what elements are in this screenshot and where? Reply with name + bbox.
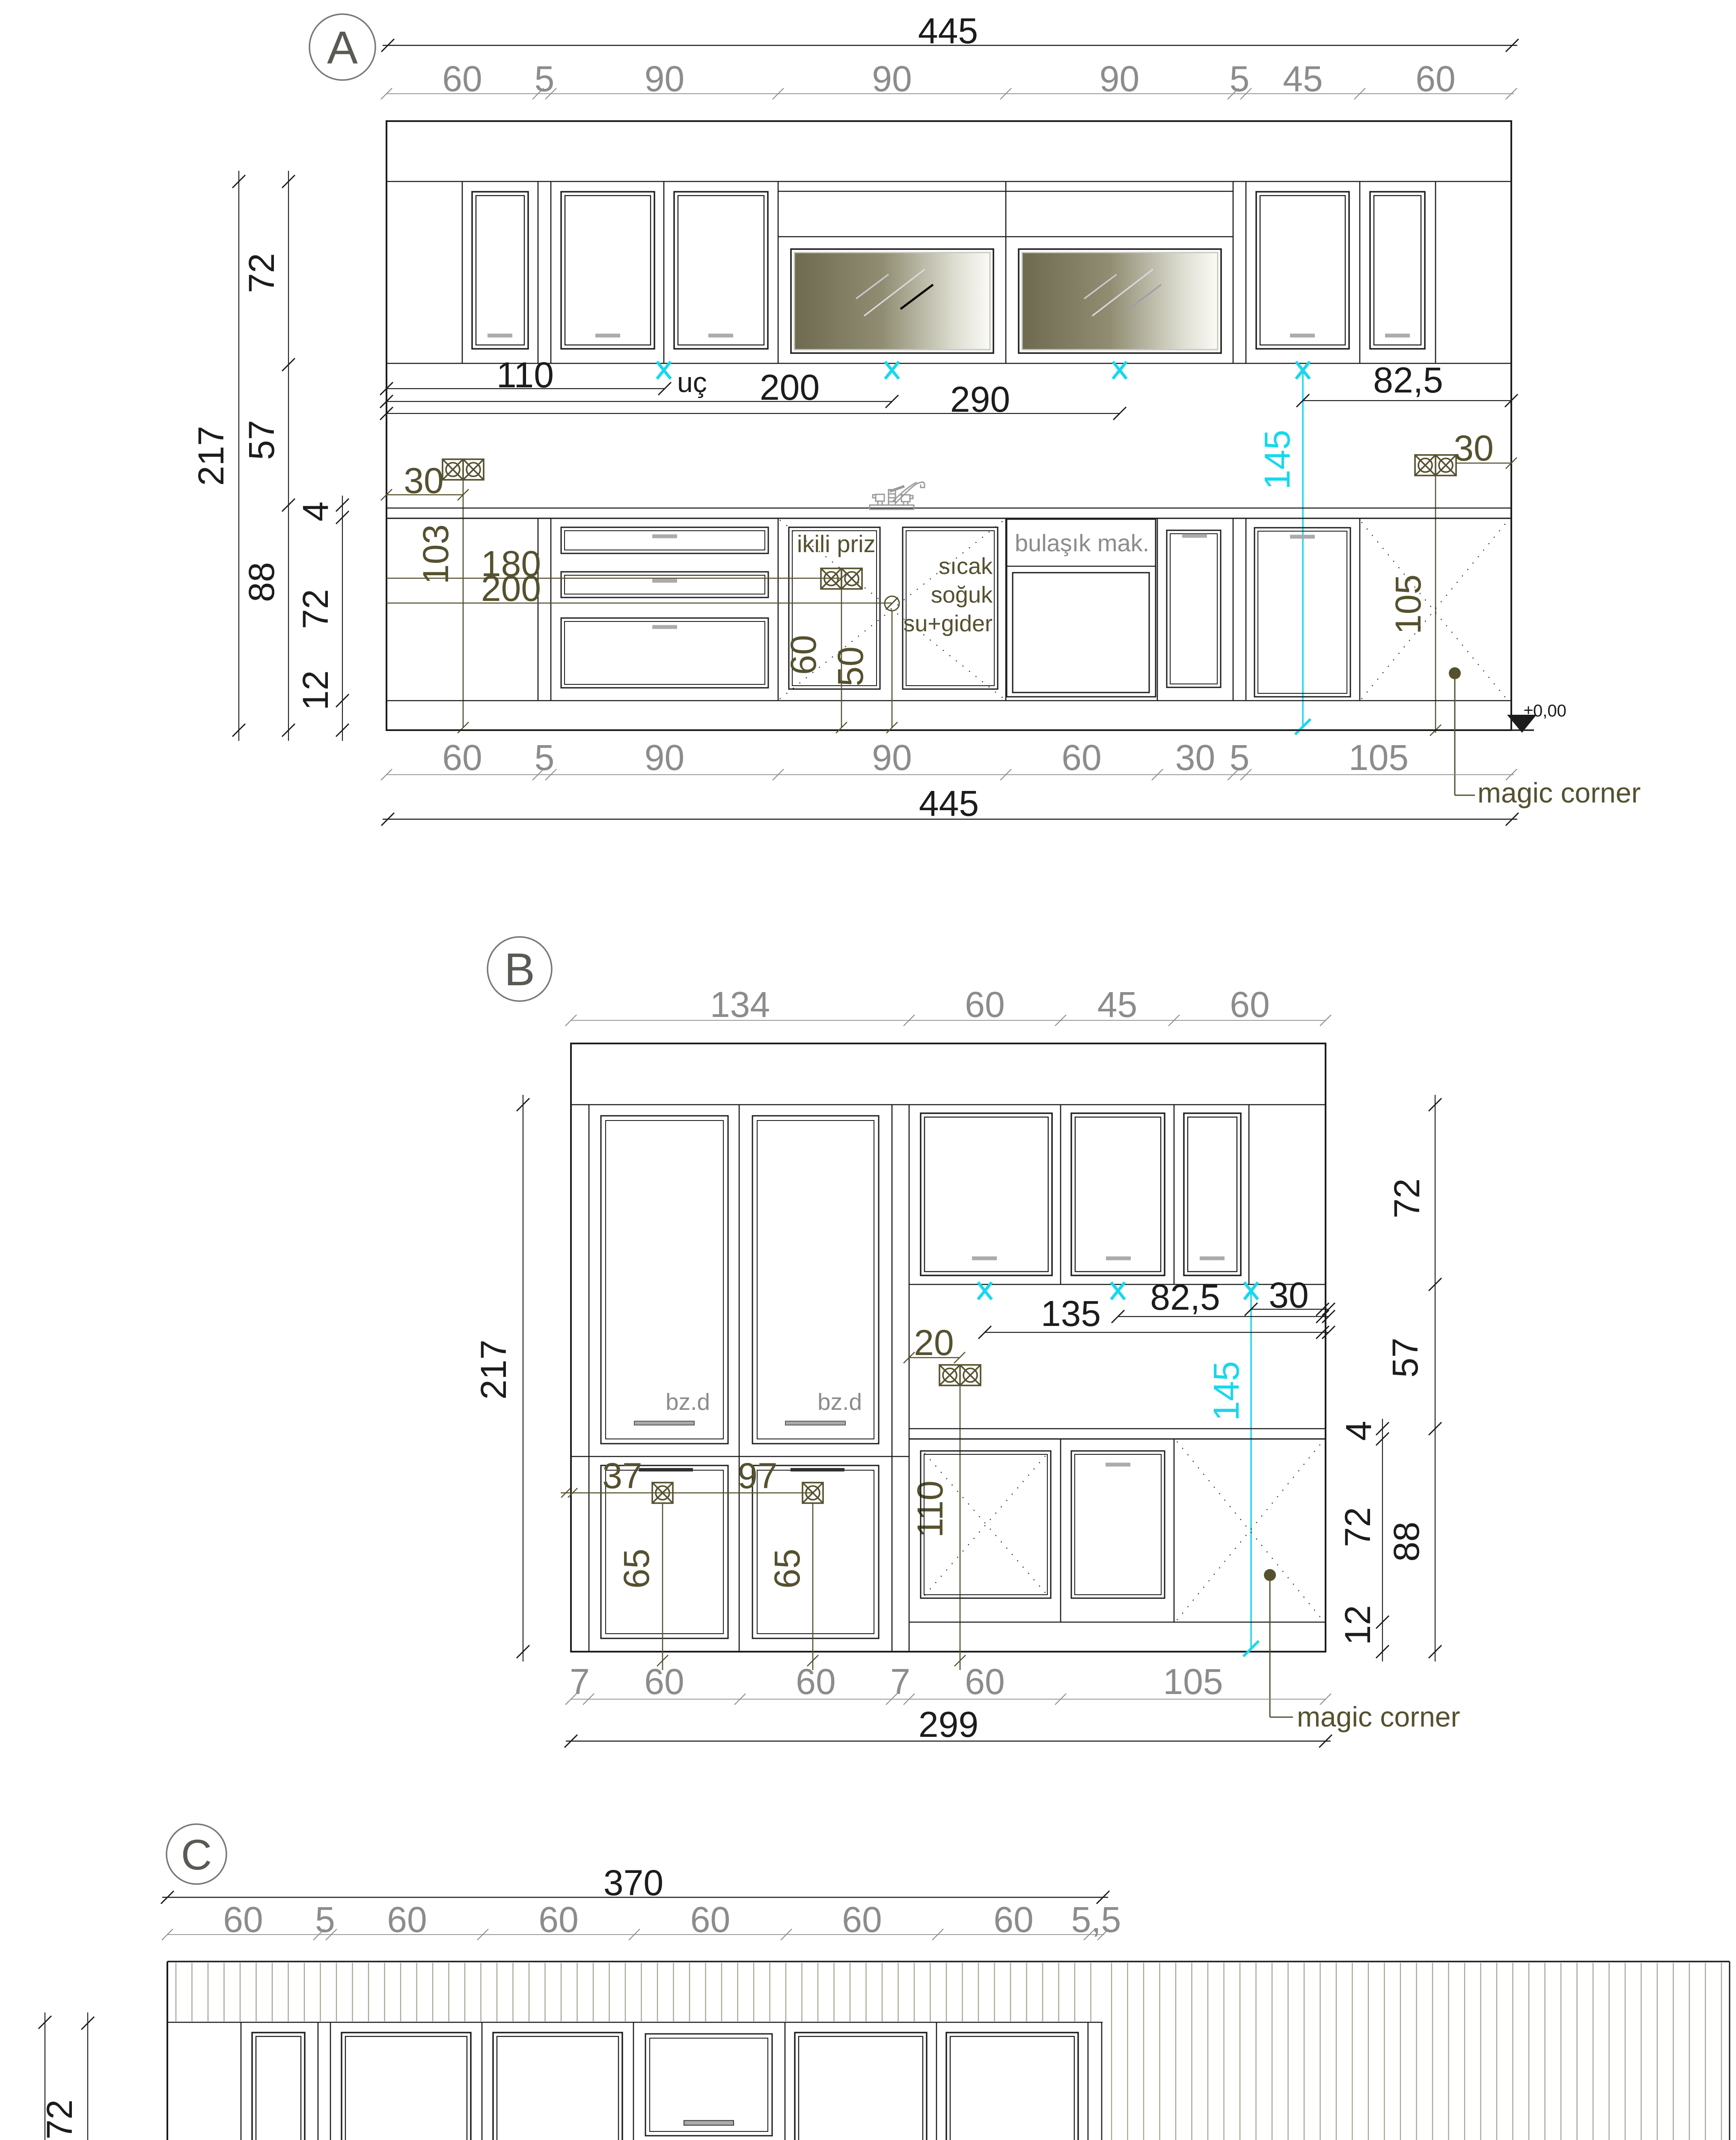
svg-text:299: 299 <box>919 1704 978 1745</box>
svg-text:65: 65 <box>616 1549 657 1588</box>
svg-text:82,5: 82,5 <box>1150 1277 1220 1317</box>
svg-text:bz.d: bz.d <box>817 1388 862 1415</box>
svg-text:magic corner: magic corner <box>1297 1701 1460 1733</box>
svg-text:50: 50 <box>830 646 871 686</box>
svg-text:90: 90 <box>645 59 684 99</box>
svg-text:72: 72 <box>1387 1178 1427 1218</box>
svg-text:45: 45 <box>1097 984 1137 1025</box>
svg-text:105: 105 <box>1163 1661 1223 1702</box>
svg-text:217: 217 <box>473 1340 514 1400</box>
svg-text:90: 90 <box>1100 59 1139 99</box>
svg-text:445: 445 <box>919 783 979 823</box>
svg-text:217: 217 <box>191 426 231 486</box>
svg-text:60: 60 <box>796 1661 835 1702</box>
svg-text:82,5: 82,5 <box>1373 360 1443 400</box>
svg-text:57: 57 <box>1385 1337 1425 1377</box>
svg-text:103: 103 <box>416 524 456 584</box>
svg-text:60: 60 <box>538 1899 578 1940</box>
svg-text:30: 30 <box>1454 428 1493 468</box>
svg-text:A: A <box>327 21 358 73</box>
svg-text:72: 72 <box>1338 1507 1378 1547</box>
svg-text:90: 90 <box>872 737 912 778</box>
svg-text:60: 60 <box>965 984 1005 1025</box>
svg-text:88: 88 <box>241 562 282 602</box>
svg-text:60: 60 <box>442 737 482 778</box>
svg-text:105: 105 <box>1388 574 1428 634</box>
svg-text:bulaşık mak.: bulaşık mak. <box>1015 529 1149 556</box>
svg-text:5: 5 <box>535 59 555 99</box>
svg-text:7: 7 <box>570 1661 590 1702</box>
svg-text:60: 60 <box>690 1899 730 1940</box>
svg-text:ikili priz: ikili priz <box>797 530 876 557</box>
svg-text:5: 5 <box>315 1899 335 1940</box>
svg-text:134: 134 <box>710 984 770 1025</box>
svg-text:C: C <box>181 1831 212 1879</box>
svg-text:60: 60 <box>644 1661 684 1702</box>
svg-text:65: 65 <box>767 1549 807 1588</box>
svg-text:5: 5 <box>1230 59 1250 99</box>
svg-text:60: 60 <box>783 635 823 675</box>
svg-text:105: 105 <box>1349 737 1409 778</box>
svg-text:60: 60 <box>993 1899 1033 1940</box>
svg-text:37: 37 <box>602 1456 642 1496</box>
svg-text:12: 12 <box>1338 1605 1378 1645</box>
svg-text:60: 60 <box>387 1899 427 1940</box>
svg-text:135: 135 <box>1041 1293 1101 1334</box>
svg-text:soğuk: soğuk <box>931 582 993 608</box>
svg-text:4: 4 <box>1338 1421 1379 1441</box>
svg-text:45: 45 <box>1283 59 1323 99</box>
svg-text:sıcak: sıcak <box>939 553 993 579</box>
svg-text:5: 5 <box>1230 737 1250 778</box>
svg-text:4: 4 <box>295 502 336 522</box>
svg-text:90: 90 <box>645 737 684 778</box>
svg-text:uç: uç <box>677 366 707 398</box>
svg-text:145: 145 <box>1206 1361 1246 1421</box>
svg-text:12: 12 <box>295 670 336 710</box>
svg-text:su+gider: su+gider <box>903 611 993 636</box>
svg-text:72: 72 <box>241 253 282 293</box>
svg-text:bz.d: bz.d <box>666 1388 710 1415</box>
svg-text:90: 90 <box>872 59 912 99</box>
svg-text:30: 30 <box>1175 737 1215 778</box>
svg-text:60: 60 <box>442 59 482 99</box>
svg-text:145: 145 <box>1257 430 1297 490</box>
svg-text:20: 20 <box>914 1323 954 1363</box>
svg-text:72: 72 <box>295 589 336 629</box>
svg-text:5,5: 5,5 <box>1071 1899 1121 1940</box>
svg-text:57: 57 <box>241 420 282 460</box>
svg-text:60: 60 <box>1230 984 1269 1025</box>
svg-text:72: 72 <box>39 2099 80 2139</box>
svg-text:60: 60 <box>842 1899 882 1940</box>
svg-text:7: 7 <box>890 1661 910 1702</box>
svg-text:magic corner: magic corner <box>1477 777 1641 808</box>
svg-text:5: 5 <box>535 737 555 778</box>
svg-text:60: 60 <box>965 1661 1005 1702</box>
svg-text:110: 110 <box>910 1480 950 1538</box>
svg-text:60: 60 <box>1415 59 1455 99</box>
svg-text:97: 97 <box>737 1456 777 1496</box>
svg-text:B: B <box>504 943 535 995</box>
svg-text:88: 88 <box>1386 1522 1427 1561</box>
svg-text:60: 60 <box>1061 737 1101 778</box>
svg-text:60: 60 <box>223 1899 263 1940</box>
